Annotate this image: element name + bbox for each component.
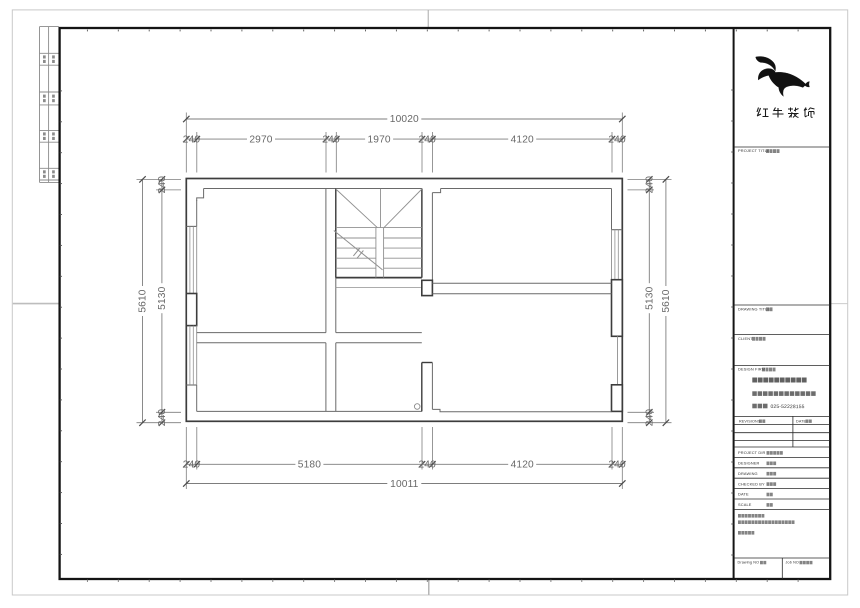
svg-text:240: 240 (183, 134, 201, 145)
svg-text:DATE: DATE (796, 419, 807, 423)
svg-text:DATE: DATE (738, 492, 749, 497)
svg-text:SCALE: SCALE (738, 502, 752, 507)
svg-text:DESIGNER: DESIGNER (738, 461, 760, 466)
svg-text:DRAWING: DRAWING (738, 471, 758, 476)
svg-text:10020: 10020 (390, 114, 419, 125)
svg-text:PROJECT DIR: PROJECT DIR (738, 450, 766, 455)
svg-text:REVISIONS: REVISIONS (739, 419, 761, 423)
svg-text:5610: 5610 (138, 289, 149, 312)
svg-text:5610: 5610 (661, 289, 672, 312)
svg-text:240: 240 (418, 134, 436, 145)
svg-text:5130: 5130 (644, 286, 655, 309)
svg-text:240: 240 (608, 134, 626, 145)
svg-text:240: 240 (644, 409, 655, 427)
svg-text:CHECKED BY: CHECKED BY (738, 481, 765, 486)
svg-text:5130: 5130 (157, 286, 168, 309)
svg-text:025-52228155: 025-52228155 (770, 404, 804, 410)
svg-text:240: 240 (157, 176, 168, 194)
svg-text:4120: 4120 (511, 134, 534, 145)
svg-text:5180: 5180 (298, 460, 321, 471)
svg-text:240: 240 (157, 409, 168, 427)
svg-text:Drawing NO: Drawing NO (738, 561, 760, 565)
svg-text:240: 240 (608, 460, 626, 471)
svg-text:Job NO: Job NO (786, 561, 799, 565)
svg-text:DESIGN FIRM: DESIGN FIRM (738, 367, 765, 372)
svg-text:2970: 2970 (249, 134, 272, 145)
svg-text:240: 240 (644, 176, 655, 194)
svg-text:4120: 4120 (511, 460, 534, 471)
svg-text:CLIENT: CLIENT (738, 336, 753, 341)
svg-text:DRAWING TITLE: DRAWING TITLE (738, 306, 770, 311)
svg-text:1970: 1970 (367, 134, 390, 145)
svg-text:240: 240 (322, 134, 340, 145)
svg-text:240: 240 (183, 460, 201, 471)
svg-text:10011: 10011 (390, 479, 419, 490)
svg-text:240: 240 (418, 460, 436, 471)
svg-text:PROJECT TITLE: PROJECT TITLE (738, 148, 770, 153)
